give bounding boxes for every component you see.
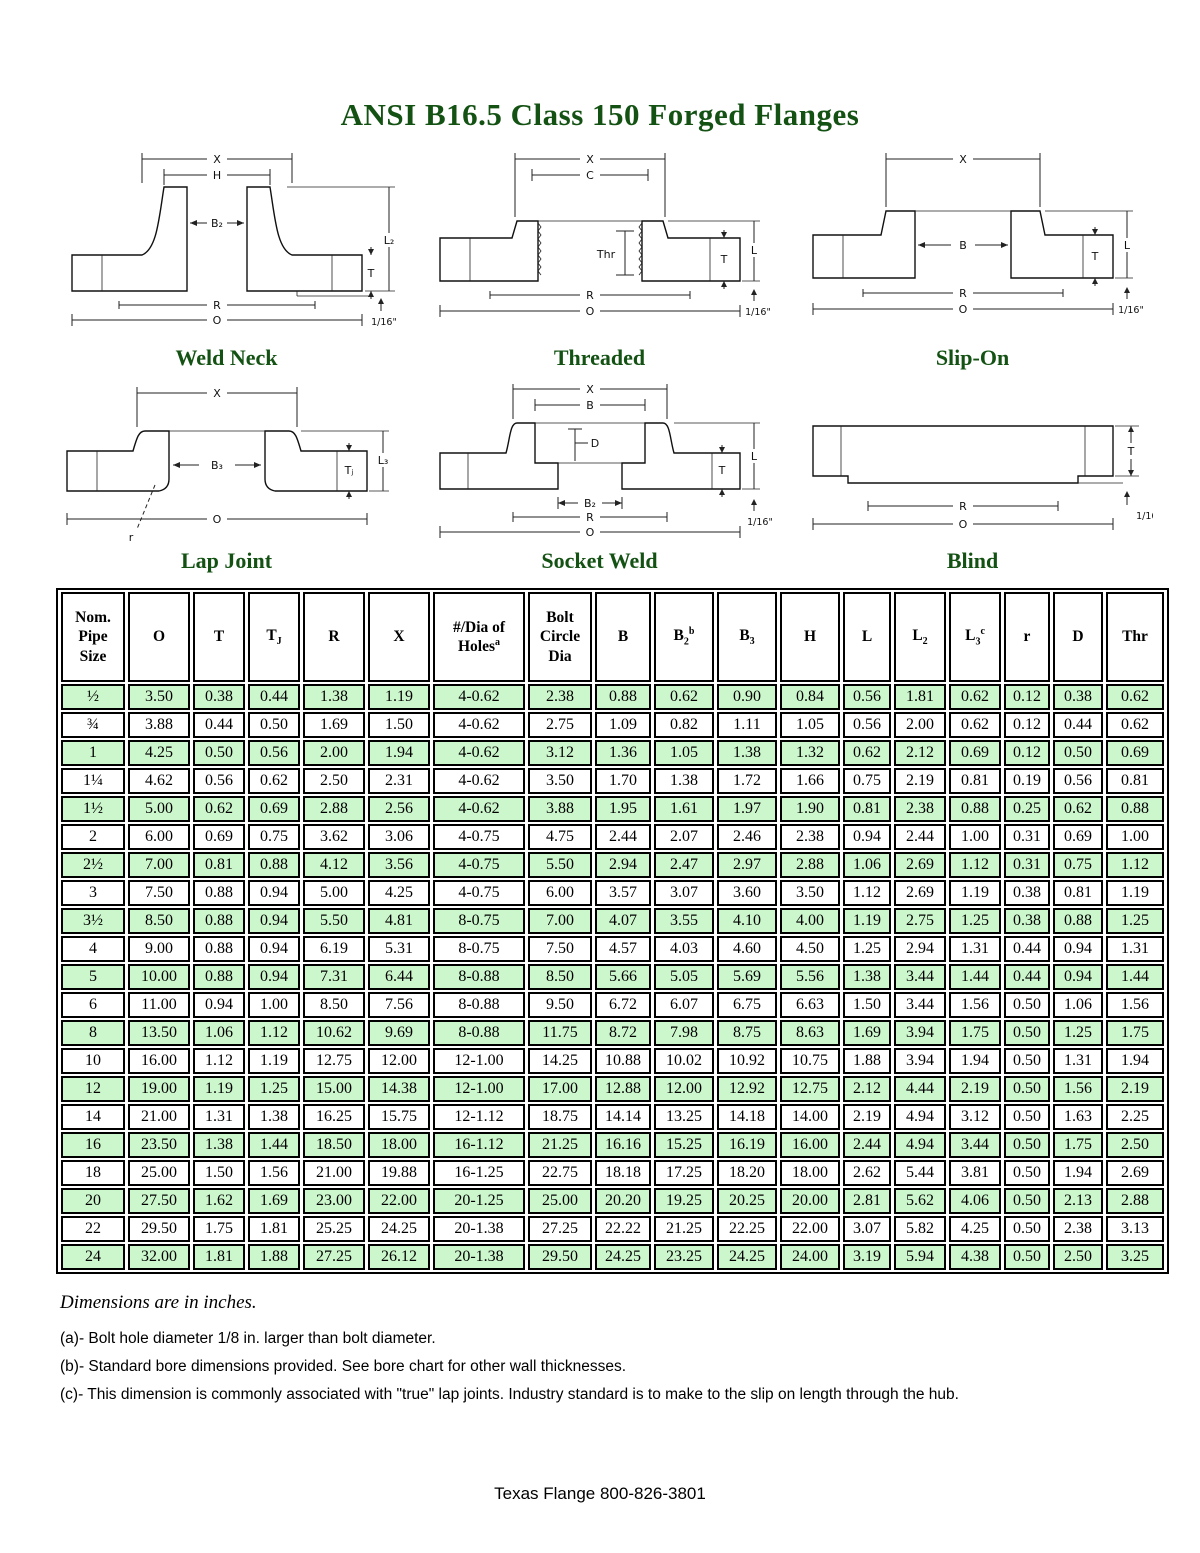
dim-label-raised-face: 1/16": [745, 307, 771, 318]
table-cell: 1.31: [949, 936, 1001, 962]
table-cell: 4.00: [780, 908, 840, 934]
table-cell: 1.61: [654, 796, 714, 822]
table-cell: 3.94: [894, 1020, 946, 1046]
table-cell: 1.69: [843, 1020, 891, 1046]
blind-diagram: T R O 1/16": [793, 381, 1153, 546]
table-cell: 0.44: [193, 712, 245, 738]
table-row: 1825.001.501.5621.0019.8816-1.2522.7518.…: [61, 1160, 1164, 1186]
table-cell: 8: [61, 1020, 125, 1046]
table-cell: 0.69: [248, 796, 300, 822]
table-cell: 1.94: [1106, 1048, 1164, 1074]
table-row: 611.000.941.008.507.568-0.889.506.726.07…: [61, 992, 1164, 1018]
table-row: 1¼4.620.560.622.502.314-0.623.501.701.38…: [61, 768, 1164, 794]
table-cell: 1.75: [1106, 1020, 1164, 1046]
dim-label-o: O: [585, 305, 594, 318]
table-cell: 2.31: [368, 768, 430, 794]
table-cell: 2.46: [717, 824, 777, 850]
table-cell: 1.44: [248, 1132, 300, 1158]
table-cell: 1.06: [193, 1020, 245, 1046]
table-cell: 18.75: [528, 1104, 592, 1130]
table-cell: 18.18: [595, 1160, 651, 1186]
slip-on-diagram: X B T L R O 1/16": [793, 143, 1153, 343]
table-cell: 1.88: [843, 1048, 891, 1074]
table-cell: 2.44: [894, 824, 946, 850]
dim-label-h: H: [212, 169, 220, 182]
table-cell: 2½: [61, 852, 125, 878]
column-header: O: [128, 592, 190, 682]
table-cell: 4-0.75: [433, 852, 525, 878]
table-cell: 1.81: [894, 684, 946, 710]
table-cell: 21.25: [528, 1132, 592, 1158]
dim-label-thr: Thr: [595, 248, 615, 261]
table-cell: 3.44: [894, 992, 946, 1018]
table-cell: 9.50: [528, 992, 592, 1018]
dim-label-raised-face: 1/16": [371, 317, 397, 328]
table-cell: 19.25: [654, 1188, 714, 1214]
table-cell: 12.92: [717, 1076, 777, 1102]
dimensions-note: Dimensions are in inches.: [60, 1292, 257, 1314]
table-cell: 1.81: [193, 1244, 245, 1270]
table-cell: 4.44: [894, 1076, 946, 1102]
table-cell: 4-0.62: [433, 796, 525, 822]
table-cell: 1.94: [368, 740, 430, 766]
dim-label-r: R: [213, 299, 221, 312]
table-row: 510.000.880.947.316.448-0.888.505.665.05…: [61, 964, 1164, 990]
footnotes: (a)- Bolt hole diameter 1/8 in. larger t…: [60, 1330, 959, 1414]
table-cell: 1.38: [717, 740, 777, 766]
table-cell: 6.72: [595, 992, 651, 1018]
dim-label-r: R: [959, 287, 967, 300]
table-cell: 4.75: [528, 824, 592, 850]
table-cell: 20-1.38: [433, 1244, 525, 1270]
table-cell: 1.05: [654, 740, 714, 766]
table-cell: 16-1.25: [433, 1160, 525, 1186]
dim-label-t: T: [1126, 445, 1134, 458]
table-cell: 2.69: [894, 852, 946, 878]
footnote-b: (b)- Standard bore dimensions provided. …: [60, 1358, 959, 1376]
table-cell: 0.44: [1004, 964, 1050, 990]
page: ANSI B16.5 Class 150 Forged Flanges X H: [0, 0, 1200, 1553]
table-row: 2229.501.751.8125.2524.2520-1.3827.2522.…: [61, 1216, 1164, 1242]
table-cell: 4-0.62: [433, 740, 525, 766]
table-cell: 23.50: [128, 1132, 190, 1158]
table-cell: 0.75: [1053, 852, 1103, 878]
table-cell: 3.07: [654, 880, 714, 906]
table-cell: 4.25: [368, 880, 430, 906]
table-cell: 0.50: [1004, 1048, 1050, 1074]
dim-label-t: T: [1090, 250, 1098, 263]
table-row: 3½8.500.880.945.504.818-0.757.004.073.55…: [61, 908, 1164, 934]
table-cell: 1½: [61, 796, 125, 822]
table-cell: 1.90: [780, 796, 840, 822]
dim-label-x: X: [213, 387, 221, 400]
column-header: Bolt Circle Dia: [528, 592, 592, 682]
table-cell: 7.56: [368, 992, 430, 1018]
table-cell: 1.11: [717, 712, 777, 738]
table-cell: 2: [61, 824, 125, 850]
table-cell: 2.50: [1106, 1132, 1164, 1158]
table-cell: 2.44: [843, 1132, 891, 1158]
table-cell: 1.44: [1106, 964, 1164, 990]
table-cell: 13.25: [654, 1104, 714, 1130]
table-cell: 0.69: [1053, 824, 1103, 850]
table-cell: 0.19: [1004, 768, 1050, 794]
table-cell: 0.38: [1004, 908, 1050, 934]
table-cell: 4-0.75: [433, 824, 525, 850]
table-cell: 22: [61, 1216, 125, 1242]
table-cell: 7.00: [128, 852, 190, 878]
table-cell: 15.75: [368, 1104, 430, 1130]
table-cell: 1.56: [1106, 992, 1164, 1018]
table-cell: 14.14: [595, 1104, 651, 1130]
table-cell: 12.00: [654, 1076, 714, 1102]
dim-label-x: X: [213, 153, 221, 166]
table-cell: 0.56: [193, 768, 245, 794]
table-cell: 1.12: [949, 852, 1001, 878]
table-cell: 0.84: [780, 684, 840, 710]
table-cell: 3: [61, 880, 125, 906]
table-cell: 4.81: [368, 908, 430, 934]
table-cell: 6.00: [128, 824, 190, 850]
table-cell: 6.44: [368, 964, 430, 990]
table-cell: 1.97: [717, 796, 777, 822]
table-cell: 1.00: [949, 824, 1001, 850]
table-row: 813.501.061.1210.629.698-0.8811.758.727.…: [61, 1020, 1164, 1046]
table-cell: 12.75: [780, 1076, 840, 1102]
table-cell: 1.66: [780, 768, 840, 794]
table-cell: 3.50: [128, 684, 190, 710]
table-cell: 0.88: [193, 880, 245, 906]
table-cell: 8-0.88: [433, 964, 525, 990]
table-cell: 1.63: [1053, 1104, 1103, 1130]
table-cell: ¾: [61, 712, 125, 738]
table-cell: 2.38: [780, 824, 840, 850]
dim-label-l3: L₃: [377, 454, 388, 467]
footnote-c: (c)- This dimension is commonly associat…: [60, 1386, 959, 1404]
table-cell: 2.47: [654, 852, 714, 878]
table-cell: 0.62: [949, 684, 1001, 710]
table-cell: 1.56: [949, 992, 1001, 1018]
table-cell: 2.69: [1106, 1160, 1164, 1186]
table-cell: 20-1.38: [433, 1216, 525, 1242]
table-cell: 0.88: [595, 684, 651, 710]
table-cell: 32.00: [128, 1244, 190, 1270]
threaded-diagram: X C Thr T L R O: [420, 143, 780, 343]
table-cell: 2.75: [528, 712, 592, 738]
table-cell: 1.25: [1106, 908, 1164, 934]
table-cell: 3.88: [128, 712, 190, 738]
table-cell: 18.50: [303, 1132, 365, 1158]
dim-label-o: O: [212, 314, 221, 327]
dim-label-r: R: [959, 500, 967, 513]
column-header: H: [780, 592, 840, 682]
table-cell: 21.00: [128, 1104, 190, 1130]
table-cell: 1.69: [303, 712, 365, 738]
table-cell: 4.03: [654, 936, 714, 962]
table-cell: 24.00: [780, 1244, 840, 1270]
table-cell: 4.38: [949, 1244, 1001, 1270]
table-cell: 22.25: [717, 1216, 777, 1242]
socket-weld-figure: X B D T L B₂ R: [413, 381, 786, 574]
table-cell: 2.19: [843, 1104, 891, 1130]
table-cell: 3.88: [528, 796, 592, 822]
dim-label-t: T: [717, 464, 725, 477]
table-cell: 1.69: [248, 1188, 300, 1214]
table-cell: 2.19: [949, 1076, 1001, 1102]
table-cell: 3.50: [528, 768, 592, 794]
table-cell: 0.88: [1106, 796, 1164, 822]
column-header: L3c: [949, 592, 1001, 682]
table-row: 1016.001.121.1912.7512.0012-1.0014.2510.…: [61, 1048, 1164, 1074]
table-cell: 29.50: [128, 1216, 190, 1242]
table-cell: 3.06: [368, 824, 430, 850]
table-cell: 6.19: [303, 936, 365, 962]
table-cell: 1.31: [1106, 936, 1164, 962]
table-cell: 12-1.12: [433, 1104, 525, 1130]
table-cell: 11.75: [528, 1020, 592, 1046]
table-cell: 0.44: [1004, 936, 1050, 962]
table-cell: 6.63: [780, 992, 840, 1018]
table-cell: 3.19: [843, 1244, 891, 1270]
table-cell: 0.88: [193, 936, 245, 962]
table-cell: 10.88: [595, 1048, 651, 1074]
table-cell: 1.50: [368, 712, 430, 738]
table-cell: 5.00: [303, 880, 365, 906]
table-cell: 10.62: [303, 1020, 365, 1046]
table-cell: 9.69: [368, 1020, 430, 1046]
table-cell: 1.19: [248, 1048, 300, 1074]
table-cell: 21.00: [303, 1160, 365, 1186]
table-cell: 29.50: [528, 1244, 592, 1270]
table-cell: 8-0.75: [433, 936, 525, 962]
table-cell: 16.25: [303, 1104, 365, 1130]
table-cell: 0.81: [1106, 768, 1164, 794]
table-cell: 4-0.62: [433, 684, 525, 710]
table-cell: 1.38: [248, 1104, 300, 1130]
table-cell: 1.25: [1053, 1020, 1103, 1046]
table-cell: 0.94: [248, 908, 300, 934]
table-cell: 14.00: [780, 1104, 840, 1130]
table-cell: 0.81: [193, 852, 245, 878]
table-cell: 20.00: [780, 1188, 840, 1214]
table-cell: 7.98: [654, 1020, 714, 1046]
table-cell: 4.10: [717, 908, 777, 934]
table-cell: 0.75: [248, 824, 300, 850]
table-cell: 1.25: [949, 908, 1001, 934]
footer-contact: Texas Flange 800-826-3801: [0, 1484, 1200, 1504]
table-cell: 0.62: [193, 796, 245, 822]
table-cell: 0.88: [193, 908, 245, 934]
footnote-a: (a)- Bolt hole diameter 1/8 in. larger t…: [60, 1330, 959, 1348]
table-cell: 12.00: [368, 1048, 430, 1074]
table-row: 49.000.880.946.195.318-0.757.504.574.034…: [61, 936, 1164, 962]
table-cell: ½: [61, 684, 125, 710]
threaded-figure: X C Thr T L R O: [413, 143, 786, 371]
table-cell: 5.94: [894, 1244, 946, 1270]
table-cell: 8.75: [717, 1020, 777, 1046]
table-cell: 20-1.25: [433, 1188, 525, 1214]
table-cell: 8.63: [780, 1020, 840, 1046]
table-cell: 0.94: [248, 936, 300, 962]
table-cell: 0.44: [248, 684, 300, 710]
table-cell: 1.75: [949, 1020, 1001, 1046]
dim-label-l2: L₂: [383, 234, 394, 247]
table-cell: 8-0.88: [433, 992, 525, 1018]
table-cell: 2.12: [894, 740, 946, 766]
column-header: T: [193, 592, 245, 682]
table-cell: 2.81: [843, 1188, 891, 1214]
caption-weld-neck: Weld Neck: [175, 345, 277, 371]
table-cell: 0.82: [654, 712, 714, 738]
table-cell: 15.25: [654, 1132, 714, 1158]
column-header: B: [595, 592, 651, 682]
column-header: Nom. Pipe Size: [61, 592, 125, 682]
table-cell: 5.66: [595, 964, 651, 990]
table-cell: 3.13: [1106, 1216, 1164, 1242]
table-cell: 23.00: [303, 1188, 365, 1214]
table-cell: 4-0.75: [433, 880, 525, 906]
caption-threaded: Threaded: [554, 345, 645, 371]
table-cell: 15.00: [303, 1076, 365, 1102]
column-header: r: [1004, 592, 1050, 682]
table-cell: 7.50: [528, 936, 592, 962]
table-cell: 3.25: [1106, 1244, 1164, 1270]
table-row: 26.000.690.753.623.064-0.754.752.442.072…: [61, 824, 1164, 850]
dim-label-r: R: [586, 289, 594, 302]
column-header: L: [843, 592, 891, 682]
table-cell: 10: [61, 1048, 125, 1074]
lap-joint-figure: X B₃ Tⱼ L₃ O r Lap Joint: [40, 381, 413, 574]
dim-label-x: X: [586, 383, 594, 396]
table-cell: 0.38: [1053, 684, 1103, 710]
table-cell: 24.25: [595, 1244, 651, 1270]
table-row: 1421.001.311.3816.2515.7512-1.1218.7514.…: [61, 1104, 1164, 1130]
table-cell: 3½: [61, 908, 125, 934]
table-cell: 0.50: [1004, 1244, 1050, 1270]
table-cell: 12-1.00: [433, 1076, 525, 1102]
table-cell: 1.00: [1106, 824, 1164, 850]
column-header: B2b: [654, 592, 714, 682]
table-cell: 4.12: [303, 852, 365, 878]
table-cell: 5.50: [303, 908, 365, 934]
column-header: Thr: [1106, 592, 1164, 682]
table-cell: 19.00: [128, 1076, 190, 1102]
table-cell: 0.62: [1053, 796, 1103, 822]
table-cell: 18.20: [717, 1160, 777, 1186]
table-cell: 4.57: [595, 936, 651, 962]
table-cell: 4.06: [949, 1188, 1001, 1214]
table-cell: 27.25: [528, 1216, 592, 1242]
table-cell: 2.94: [595, 852, 651, 878]
table-cell: 0.50: [1004, 1160, 1050, 1186]
table-cell: 22.75: [528, 1160, 592, 1186]
table-cell: 1.06: [1053, 992, 1103, 1018]
table-cell: 1.38: [843, 964, 891, 990]
table-cell: 20: [61, 1188, 125, 1214]
table-cell: 1.31: [193, 1104, 245, 1130]
table-cell: 3.62: [303, 824, 365, 850]
table-row: 2432.001.811.8827.2526.1220-1.3829.5024.…: [61, 1244, 1164, 1270]
table-row: 14.250.500.562.001.944-0.623.121.361.051…: [61, 740, 1164, 766]
table-cell: 1.19: [843, 908, 891, 934]
table-cell: 22.00: [780, 1216, 840, 1242]
table-cell: 17.25: [654, 1160, 714, 1186]
table-cell: 8.50: [528, 964, 592, 990]
dim-label-tj: Tⱼ: [343, 464, 353, 477]
table-cell: 0.81: [949, 768, 1001, 794]
table-cell: 2.75: [894, 908, 946, 934]
table-cell: 24.25: [717, 1244, 777, 1270]
dim-label-b: B: [586, 399, 594, 412]
table-cell: 22.00: [368, 1188, 430, 1214]
dim-label-b: B: [959, 239, 967, 252]
table-cell: 2.88: [303, 796, 365, 822]
table-cell: 1.32: [780, 740, 840, 766]
column-header: B3: [717, 592, 777, 682]
table-cell: 4: [61, 936, 125, 962]
table-cell: 0.62: [1106, 712, 1164, 738]
table-cell: 7.00: [528, 908, 592, 934]
table-row: ¾3.880.440.501.691.504-0.622.751.090.821…: [61, 712, 1164, 738]
table-cell: 1.95: [595, 796, 651, 822]
table-cell: 1.70: [595, 768, 651, 794]
table-cell: 8.50: [303, 992, 365, 1018]
table-cell: 5.69: [717, 964, 777, 990]
table-cell: 3.55: [654, 908, 714, 934]
table-cell: 16-1.12: [433, 1132, 525, 1158]
dim-label-l: L: [750, 244, 757, 257]
dim-label-raised-face: 1/16": [747, 517, 773, 528]
table-cell: 1.81: [248, 1216, 300, 1242]
table-cell: 1.00: [248, 992, 300, 1018]
caption-lap-joint: Lap Joint: [181, 548, 272, 574]
flange-dimensions-table: Nom. Pipe SizeOTTJRX#/Dia of HolesaBolt …: [56, 588, 1169, 1274]
table-cell: 17.00: [528, 1076, 592, 1102]
table-cell: 0.50: [1004, 1020, 1050, 1046]
table-cell: 0.12: [1004, 740, 1050, 766]
table-cell: 2.44: [595, 824, 651, 850]
table-cell: 16.19: [717, 1132, 777, 1158]
table-cell: 18: [61, 1160, 125, 1186]
table-cell: 27.25: [303, 1244, 365, 1270]
table-cell: 0.69: [949, 740, 1001, 766]
table-cell: 0.62: [949, 712, 1001, 738]
dim-label-raised-face: 1/16": [1118, 305, 1144, 316]
dim-label-x: X: [959, 153, 967, 166]
table-cell: 2.07: [654, 824, 714, 850]
table-cell: 0.50: [193, 740, 245, 766]
table-cell: 1.75: [1053, 1132, 1103, 1158]
table-cell: 0.94: [248, 880, 300, 906]
table-row: 1623.501.381.4418.5018.0016-1.1221.2516.…: [61, 1132, 1164, 1158]
table-cell: 5.50: [528, 852, 592, 878]
table-cell: 1.50: [843, 992, 891, 1018]
table-row: 1219.001.191.2515.0014.3812-1.0017.0012.…: [61, 1076, 1164, 1102]
table-cell: 16.00: [128, 1048, 190, 1074]
dim-label-d: D: [590, 437, 598, 450]
table-cell: 0.90: [717, 684, 777, 710]
table-cell: 0.50: [1004, 1132, 1050, 1158]
weld-neck-diagram: X H B₂ L₂ T R O: [47, 143, 407, 343]
table-cell: 0.75: [843, 768, 891, 794]
table-row: 2½7.000.810.884.123.564-0.755.502.942.47…: [61, 852, 1164, 878]
caption-slip-on: Slip-On: [936, 345, 1009, 371]
table-cell: 4.62: [128, 768, 190, 794]
table-cell: 3.81: [949, 1160, 1001, 1186]
table-cell: 26.12: [368, 1244, 430, 1270]
table-cell: 5.82: [894, 1216, 946, 1242]
table-cell: 0.56: [248, 740, 300, 766]
